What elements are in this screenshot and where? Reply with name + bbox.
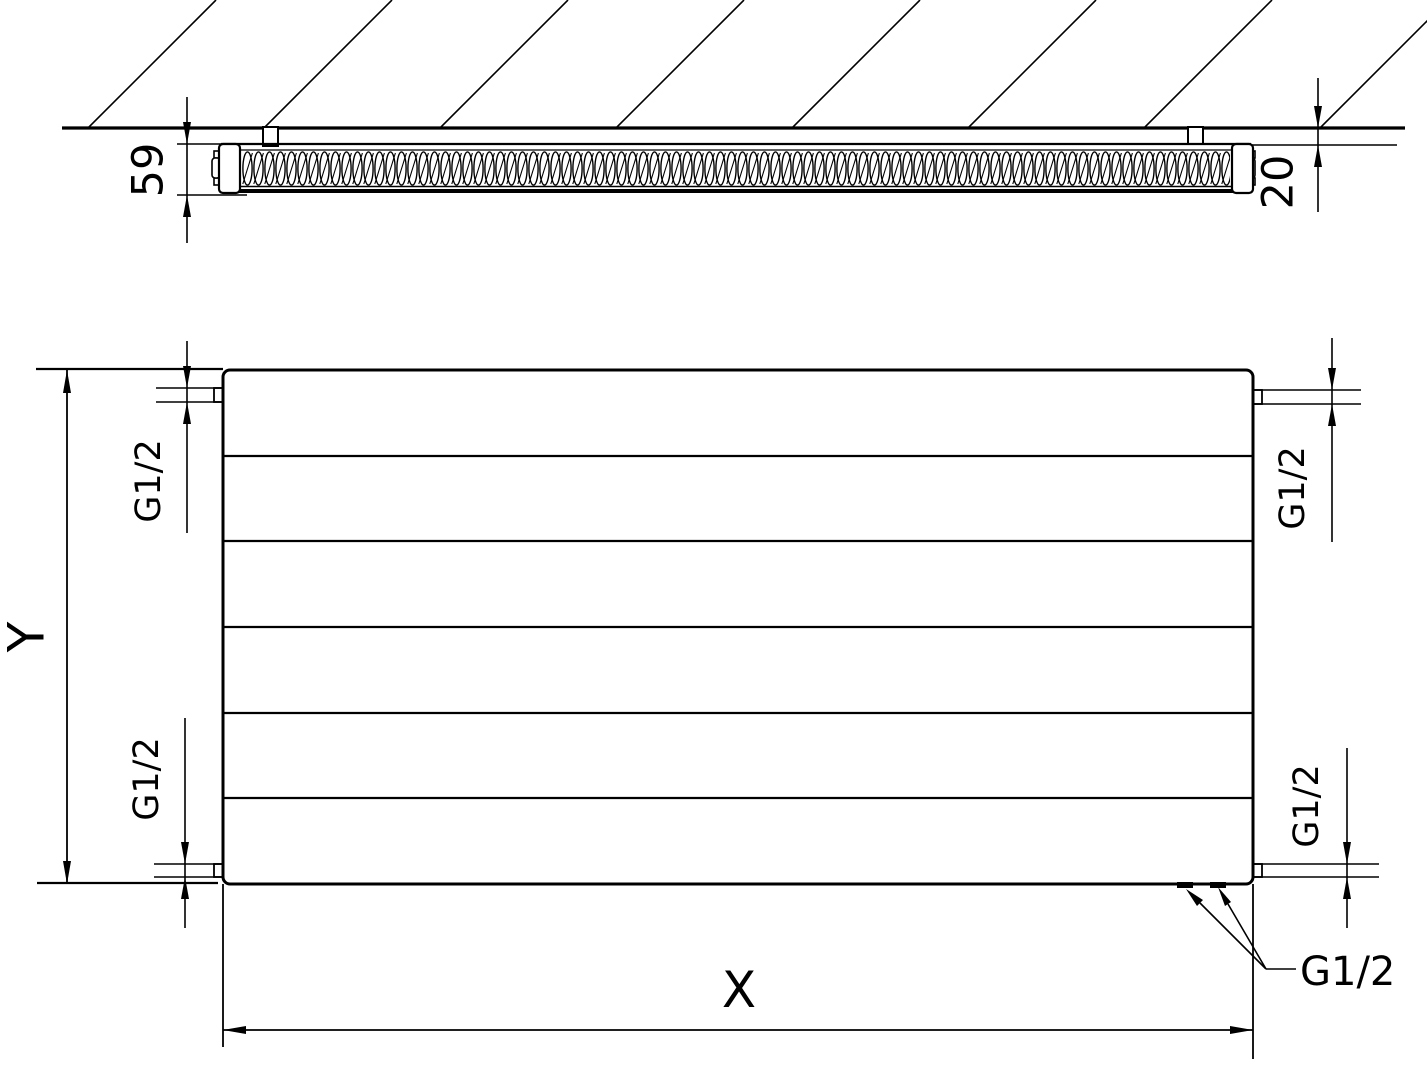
arrowhead-down [183, 366, 191, 388]
bottom-connection-right [1210, 882, 1226, 888]
port-label-top-right: G1/2 [1273, 446, 1313, 529]
arrowhead-left [223, 1026, 246, 1034]
end-cap-right [1232, 144, 1255, 193]
arrowhead-up [1314, 145, 1322, 167]
dim-width-x: X [223, 884, 1253, 1059]
arrowhead-up [1343, 877, 1351, 899]
end-cap-left [212, 144, 240, 193]
dim-width-label: X [722, 961, 756, 1019]
radiator-drawing: 59 20 Y [0, 0, 1427, 1067]
dim-wall-gap-label: 20 [1254, 155, 1304, 210]
arrowhead-up [183, 195, 191, 217]
callout-bottom-connections: G1/2 [1186, 887, 1395, 995]
port-label-bottom-right: G1/2 [1287, 764, 1327, 847]
arrowhead-down [1328, 368, 1336, 390]
dim-height-label: Y [0, 621, 56, 653]
port-label-top-left: G1/2 [129, 439, 169, 522]
port-label-bottom-left: G1/2 [127, 737, 167, 820]
dim-port-bottom-right: G1/2 [1252, 748, 1379, 928]
leader-arrowhead [1218, 887, 1231, 906]
wall-section [62, 0, 1427, 146]
dim-port-top-right: G1/2 [1252, 338, 1361, 542]
arrowhead-up [63, 370, 71, 393]
arrowhead-right [1230, 1026, 1253, 1034]
radiator-front-view [214, 370, 1262, 888]
convector-fins [242, 151, 1230, 186]
drawing-sheet: 59 20 Y [0, 0, 1427, 1067]
callout-label: G1/2 [1300, 949, 1395, 995]
arrowhead-down [1343, 842, 1351, 864]
wall-hatch-lines [88, 0, 1427, 128]
dim-wall-gap: 20 [1252, 78, 1397, 212]
arrowhead-down [1314, 106, 1322, 128]
arrowhead-down [63, 861, 71, 884]
arrowhead-down [181, 842, 189, 864]
dim-depth-label: 59 [124, 143, 174, 198]
arrowhead-down [183, 122, 191, 144]
arrowhead-up [183, 402, 191, 424]
arrowhead-up [1328, 404, 1336, 426]
dim-port-bottom-left: G1/2 [127, 718, 224, 928]
radiator-cross-section [212, 144, 1255, 193]
arrowhead-up [181, 877, 189, 899]
bottom-connection-left [1177, 882, 1193, 888]
dim-height-y: Y [0, 369, 223, 884]
wall-bracket-right [1188, 127, 1203, 144]
